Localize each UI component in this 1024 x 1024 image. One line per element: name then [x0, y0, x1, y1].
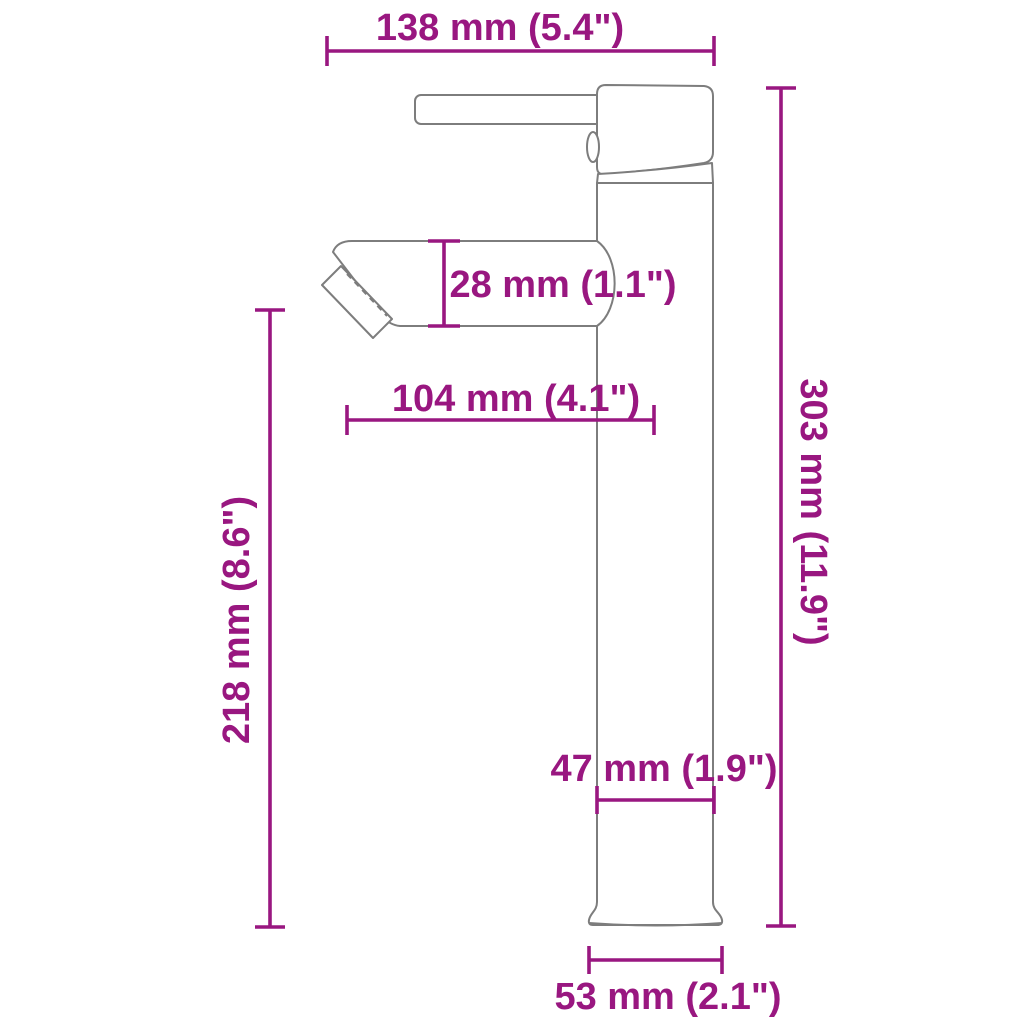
dimension-label: 303 mm (11.9"): [792, 378, 834, 645]
dimension-label: 218 mm (8.6"): [216, 496, 258, 744]
handle-joint-ellipse: [587, 132, 599, 162]
dimension-total-height: 303 mm (11.9"): [766, 88, 834, 926]
faucet-dimension-svg: 138 mm (5.4") 28 mm (1.1") 104 mm (4.1")…: [0, 0, 1024, 1024]
dimension-label: 47 mm (1.9"): [550, 748, 777, 790]
faucet-handle-lever: [415, 95, 605, 124]
dimension-spout-to-base-height: 218 mm (8.6"): [216, 310, 285, 927]
dimension-label: 53 mm (2.1"): [554, 976, 781, 1018]
dimension-drawing: 138 mm (5.4") 28 mm (1.1") 104 mm (4.1")…: [0, 0, 1024, 1024]
dimension-label: 28 mm (1.1"): [449, 264, 676, 306]
dimension-label: 138 mm (5.4"): [376, 7, 624, 49]
dimension-base-width: 53 mm (2.1"): [554, 946, 781, 1018]
dimension-top-width: 138 mm (5.4"): [327, 7, 714, 66]
dimension-label: 104 mm (4.1"): [392, 378, 640, 420]
faucet-head: [597, 85, 713, 174]
